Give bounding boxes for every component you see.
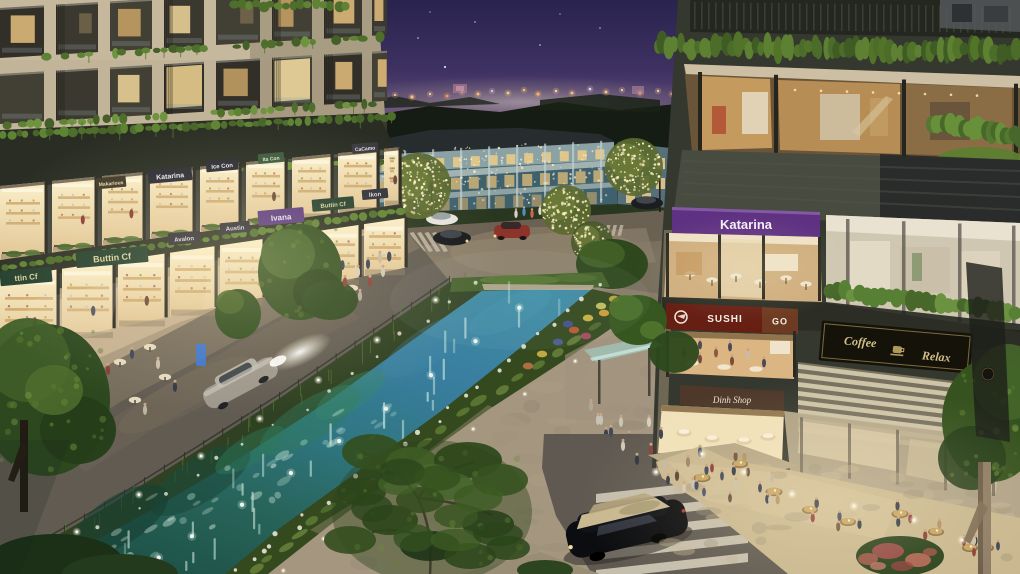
svg-text:Relax: Relax [920, 348, 951, 365]
svg-text:Coffee: Coffee [844, 333, 878, 350]
